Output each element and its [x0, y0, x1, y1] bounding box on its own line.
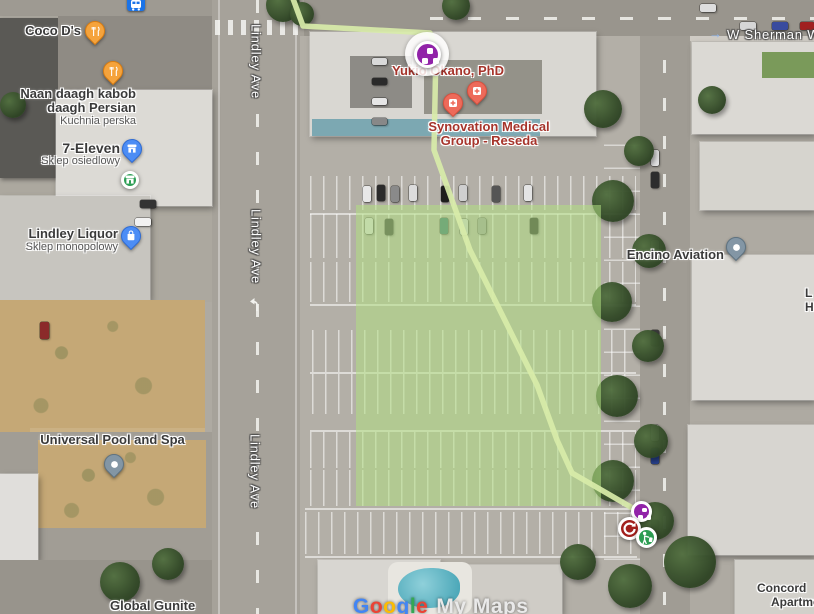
google-logo-letter: e: [416, 595, 428, 614]
selected-marker-halo: [405, 32, 449, 76]
marker-glyph-square: [427, 48, 433, 54]
label-line: H: [805, 300, 814, 314]
label-line: daagh Persian: [0, 101, 136, 115]
parked-car: [441, 186, 449, 202]
label-subtitle: Kuchnia perska: [0, 115, 136, 127]
oneway-arrow-icon: →: [709, 26, 722, 41]
fork-knife-icon: [104, 62, 122, 80]
tree: [596, 375, 638, 417]
highlighted-parking-zone-polygon[interactable]: [356, 205, 601, 506]
tree: [624, 136, 654, 166]
street-label-lindley-2: Lindley Ave: [249, 203, 264, 291]
label-line: 7-Eleven: [0, 141, 120, 155]
dot-icon: [727, 238, 745, 256]
label-subtitle: Sklep osiedlowy: [0, 155, 120, 167]
parked-car: [524, 185, 532, 201]
convenience-store-circle-icon[interactable]: [121, 171, 139, 189]
tree: [608, 564, 652, 608]
fork-knife-icon: [86, 22, 104, 40]
parked-car: [409, 185, 417, 201]
tree: [152, 548, 184, 580]
lawn: [762, 52, 814, 78]
parked-car: [40, 322, 49, 339]
label-naan: Naan daagh kabob daagh Persian Kuchnia p…: [0, 87, 136, 127]
label-line: Synovation Medical: [408, 120, 570, 134]
street-label-lindley-1: Lindley Ave: [249, 18, 264, 106]
tree: [634, 424, 668, 458]
tree: [632, 330, 664, 362]
tree: [560, 544, 596, 580]
marker-glyph-square: [433, 58, 439, 64]
parked-car: [363, 186, 371, 202]
label-coco-ds: Coco D's: [6, 24, 81, 38]
google-logo-letter: o: [383, 595, 396, 614]
label-line: Lindley Liquor: [0, 227, 118, 241]
label-yukio-okano: Yukio Okano, PhD: [377, 64, 519, 78]
label-line: Naan daagh kabob: [0, 87, 136, 101]
dirt-lot: [0, 300, 205, 432]
label-subtitle: Sklep monopolowy: [0, 241, 118, 253]
label-global-gunite: Global Gunite: [110, 599, 195, 613]
turn-lane-arrow-icon: [250, 298, 260, 312]
my-maps-label: My Maps: [436, 595, 528, 614]
parked-car: [700, 4, 716, 12]
label-synovation: Synovation Medical Group - Reseda: [408, 120, 570, 148]
label-encino-aviation: Encino Aviation: [604, 248, 724, 262]
parked-car: [372, 78, 387, 85]
parked-car: [140, 200, 156, 208]
marker-glyph-square: [642, 508, 647, 513]
label-line: Apartments: [757, 595, 814, 609]
shopping-bag-icon: [122, 227, 140, 245]
hospital-cross-icon: [444, 94, 462, 112]
building-roof: [692, 255, 814, 400]
parked-car: [372, 118, 387, 125]
parked-car: [372, 98, 387, 105]
dirt-lot: [38, 440, 206, 528]
tree: [584, 90, 622, 128]
google-my-maps-watermark: GoogleMy Maps: [353, 595, 529, 614]
building-roof: [0, 474, 38, 560]
tree: [100, 562, 140, 602]
street-label-sherman: W Sherman Way: [727, 27, 814, 42]
google-logo: Google: [353, 595, 428, 614]
parked-car: [377, 185, 385, 201]
building-roof: [700, 142, 814, 210]
dot-icon: [105, 455, 123, 473]
label-line: Concord: [757, 581, 814, 595]
bus-glyph: [130, 0, 142, 11]
custom-marker-purple-top[interactable]: [414, 41, 441, 68]
parked-car: [492, 186, 500, 202]
storefront-icon: [124, 174, 136, 186]
my-maps-satellite-canvas[interactable]: → Lindley Ave Lindley Ave Lindley Ave W …: [0, 0, 814, 614]
google-logo-letter: o: [370, 595, 383, 614]
marker-glyph-square: [638, 515, 643, 520]
street-label-lindley-3: Lindley Ave: [248, 428, 263, 516]
lot-lane-line: [305, 508, 637, 510]
road-edge-line: [218, 0, 220, 614]
tree: [290, 2, 314, 26]
building-roof: [688, 425, 814, 555]
label-concord-clipped: Concord Apartments: [757, 581, 814, 609]
road-top-left: [0, 0, 212, 16]
label-line: Group - Reseda: [408, 134, 570, 148]
marker-glyph-square: [647, 515, 652, 520]
google-logo-letter: G: [353, 595, 370, 614]
custom-marker-green-waste[interactable]: [636, 527, 657, 548]
parked-car: [459, 185, 467, 201]
label-line: L: [805, 286, 814, 300]
google-logo-letter: g: [397, 595, 410, 614]
hospital-cross-icon: [468, 82, 486, 100]
parking-pad: [58, 16, 212, 90]
label-seven-eleven: 7-Eleven Sklep osiedlowy: [0, 141, 120, 167]
storefront-icon: [123, 140, 141, 158]
label-lindley-liquor: Lindley Liquor Sklep monopolowy: [0, 227, 118, 253]
tree: [698, 86, 726, 114]
transit-station-icon[interactable]: [127, 0, 145, 11]
parked-car: [651, 172, 659, 188]
road-edge-line: [295, 0, 297, 614]
refresh-arrow-icon: [622, 521, 637, 536]
parked-car: [135, 218, 151, 226]
tree: [664, 536, 716, 588]
road-dash: [430, 17, 814, 20]
parked-car: [391, 186, 399, 202]
label-right-edge-clipped: L H: [805, 286, 814, 314]
person-litter-icon: [640, 531, 654, 545]
label-universal-pool: Universal Pool and Spa: [0, 433, 225, 447]
marker-glyph-square: [422, 58, 428, 64]
